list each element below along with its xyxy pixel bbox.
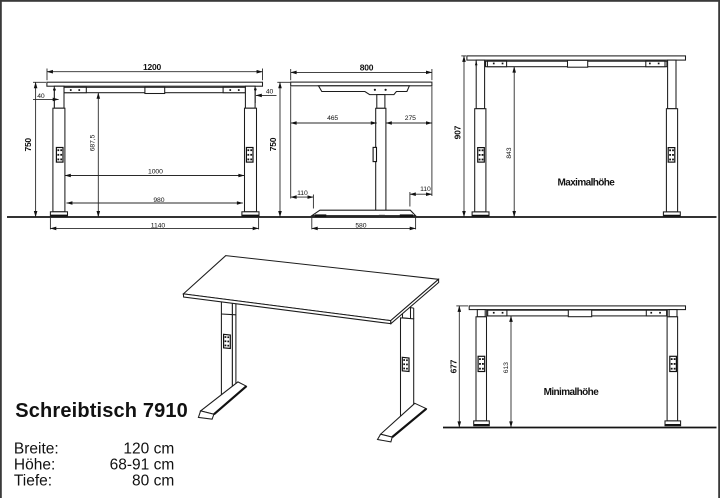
svg-text:980: 980 [153, 197, 164, 204]
svg-text:cm: cm [154, 457, 175, 474]
svg-text:40: 40 [266, 89, 274, 96]
svg-text:465: 465 [327, 115, 338, 122]
svg-text:1200: 1200 [143, 62, 161, 72]
svg-text:907: 907 [452, 125, 462, 139]
svg-text:120: 120 [123, 441, 149, 458]
svg-text:275: 275 [405, 115, 416, 122]
svg-text:110: 110 [297, 190, 308, 197]
svg-text:800: 800 [360, 62, 374, 72]
svg-text:750: 750 [268, 137, 278, 151]
svg-text:Tiefe:: Tiefe: [14, 473, 52, 490]
svg-text:40: 40 [37, 93, 45, 100]
svg-text:cm: cm [154, 441, 175, 458]
svg-text:68-91: 68-91 [110, 457, 150, 474]
svg-text:Maximalhöhe: Maximalhöhe [558, 178, 616, 189]
svg-text:110: 110 [420, 186, 431, 193]
svg-text:677: 677 [448, 359, 458, 373]
svg-text:1140: 1140 [151, 222, 166, 229]
svg-text:Minimalhöhe: Minimalhöhe [544, 387, 600, 398]
svg-text:80: 80 [132, 473, 150, 490]
svg-text:Höhe:: Höhe: [14, 457, 55, 474]
svg-text:580: 580 [355, 222, 366, 229]
svg-text:1000: 1000 [148, 169, 163, 176]
svg-text:687,5: 687,5 [89, 134, 96, 151]
svg-text:Schreibtisch 7910: Schreibtisch 7910 [15, 400, 188, 422]
svg-text:843: 843 [506, 147, 513, 158]
svg-text:Breite:: Breite: [14, 441, 59, 458]
svg-text:613: 613 [503, 362, 510, 373]
svg-text:cm: cm [154, 473, 175, 490]
svg-text:750: 750 [23, 138, 33, 152]
